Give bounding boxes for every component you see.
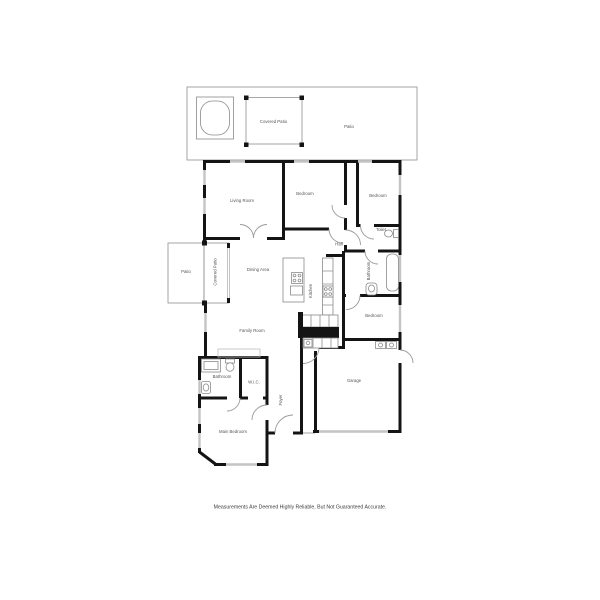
room-label-foyer: Foyer <box>278 394 283 406</box>
door-front-entry <box>275 415 293 433</box>
fixtures <box>197 97 399 394</box>
door-closet <box>332 205 345 218</box>
toilet-fixture-icon <box>385 230 399 238</box>
room-label-covered-patio-left: Covered Patio <box>213 258 218 286</box>
room-label-bathroom-1: Bathroom <box>213 374 232 379</box>
room-label-kitchen: Kitchen <box>308 283 313 298</box>
nook-cabinets <box>298 312 339 348</box>
door-living-double-right <box>254 225 268 239</box>
door-bathroom1 <box>227 398 240 411</box>
post-icon <box>300 96 305 101</box>
room-label-bedroom-2: Bedroom <box>296 191 314 196</box>
wall-mass <box>298 327 339 338</box>
room-label-living-room: Living Room <box>230 198 254 203</box>
garage-utility-units <box>376 342 397 349</box>
door-living-double-left <box>240 225 254 239</box>
door-main-bedroom <box>252 405 267 420</box>
disclaimer-text: Measurements Are Deemed Highly Reliable,… <box>214 505 387 511</box>
door-garage-side <box>400 350 413 363</box>
kitchen-island <box>283 258 304 302</box>
floorplan-page: Covered PatioPatioLiving RoomBedroomBedr… <box>0 0 600 600</box>
room-label-dining-area: Dining Area <box>247 267 270 272</box>
spa-tub-icon <box>197 97 234 139</box>
floorplan-svg: Covered PatioPatioLiving RoomBedroomBedr… <box>0 0 600 600</box>
room-label-bedroom-3: Bedroom <box>369 193 387 198</box>
room-label-hall: Hall <box>335 242 342 247</box>
room-label-main-bedroom: Main Bedroom <box>219 429 247 434</box>
room-label-covered-patio-top: Covered Patio <box>260 119 288 124</box>
wall-mainbed-diagonal <box>200 452 217 465</box>
island-sink-icon <box>291 286 303 295</box>
room-label-wic: W.I.C. <box>248 380 260 385</box>
room-label-bathroom-2: Bathroom <box>366 261 371 280</box>
room-label-toilet: Toilet <box>376 227 387 232</box>
post-icon <box>300 143 305 148</box>
buffet-cabinet <box>218 349 260 357</box>
door-bedroom4 <box>346 296 360 310</box>
kitchen-counter <box>323 258 334 315</box>
post-icon <box>244 143 249 148</box>
room-label-bedroom-4: Bedroom <box>365 313 383 318</box>
door-toilet <box>346 230 361 245</box>
post-icon <box>244 96 249 101</box>
bathtub-icon <box>387 254 399 291</box>
door-bedroom3 <box>361 226 375 240</box>
room-label-patio-left: Patio <box>181 269 191 274</box>
toilet-bowl-icon <box>226 363 234 371</box>
room-label-garage: Garage <box>347 378 362 383</box>
room-label-family-room: Family Room <box>239 328 265 333</box>
room-label-patio-top: Patio <box>344 124 354 129</box>
stove-icon <box>323 286 333 297</box>
